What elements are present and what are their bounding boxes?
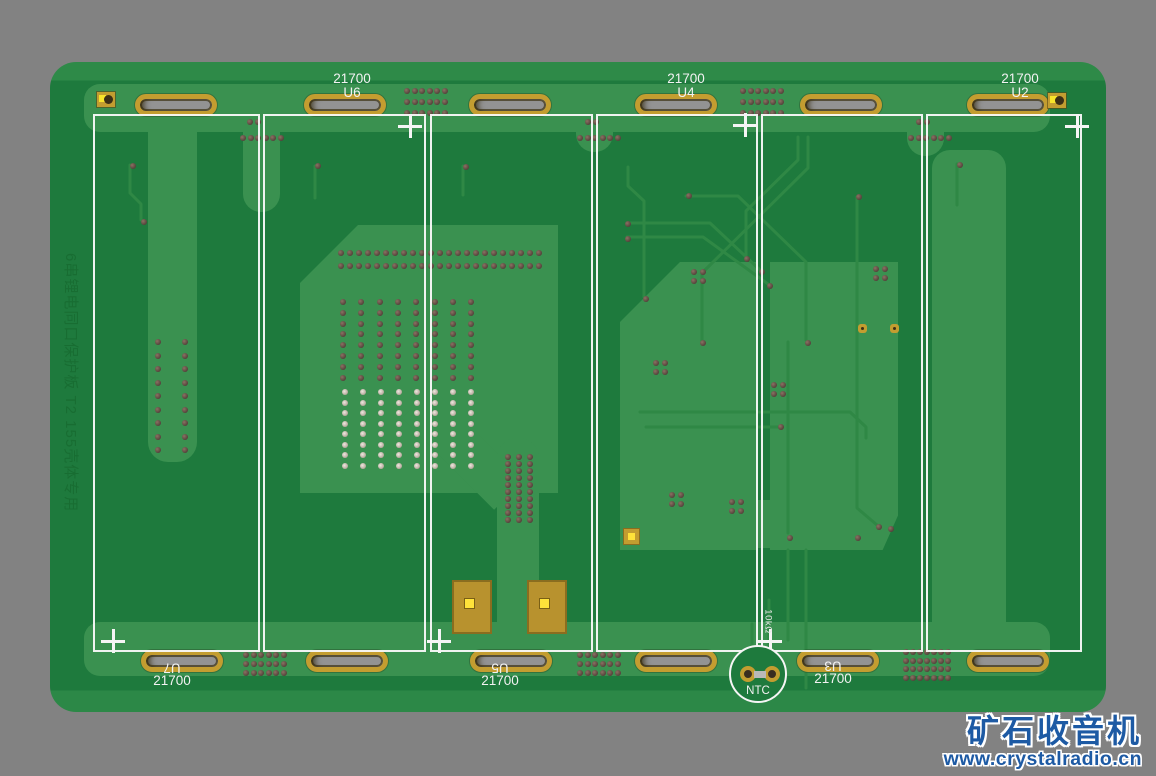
via [778, 88, 784, 94]
via [917, 666, 923, 672]
cell-label-u5: U5 21700 [458, 660, 542, 689]
cell-refdes-label: U3 [791, 658, 875, 672]
via [755, 88, 761, 94]
cell-label-u3: U3 21700 [791, 658, 875, 687]
via [770, 99, 776, 105]
via [931, 658, 937, 664]
via [585, 652, 591, 658]
via [281, 652, 287, 658]
watermark: 矿石收音机 www.crystalradio.cn [944, 714, 1142, 770]
via [924, 666, 930, 672]
via [243, 661, 249, 667]
via [903, 675, 909, 681]
via [615, 670, 621, 676]
battery-pad-u5-top [469, 94, 551, 116]
cell-refdes-label: U5 [458, 660, 542, 674]
via [251, 661, 257, 667]
via [931, 675, 937, 681]
via [442, 88, 448, 94]
ntc-pad-right [764, 666, 780, 682]
via [770, 88, 776, 94]
ntc-label: NTC [731, 685, 785, 697]
via [442, 99, 448, 105]
cell-size-label: 21700 [458, 674, 542, 688]
via [607, 652, 613, 658]
via [592, 670, 598, 676]
cell-label-u4: 21700 U4 [644, 72, 728, 101]
via [243, 670, 249, 676]
via [404, 99, 410, 105]
via [258, 661, 264, 667]
battery-pad-u6-bottom [306, 650, 388, 672]
cell-size-label: 21700 [310, 72, 394, 86]
via [427, 88, 433, 94]
via [281, 661, 287, 667]
via [903, 658, 909, 664]
via [910, 658, 916, 664]
via [607, 670, 613, 676]
via [763, 99, 769, 105]
via [266, 652, 272, 658]
via [266, 661, 272, 667]
cell-refdes-label: U7 [130, 660, 214, 674]
cell-outline-u4 [596, 114, 758, 652]
via [910, 666, 916, 672]
via [600, 652, 606, 658]
via [740, 88, 746, 94]
via [412, 88, 418, 94]
via [917, 675, 923, 681]
via [585, 661, 591, 667]
cell-refdes-label: U4 [644, 86, 728, 100]
via [600, 661, 606, 667]
cell-size-label: 21700 [978, 72, 1062, 86]
via [258, 652, 264, 658]
via [615, 661, 621, 667]
ntc-thermistor-body [754, 671, 766, 678]
alignment-cross [101, 629, 125, 653]
via [427, 99, 433, 105]
via [938, 675, 944, 681]
cell-size-label: 21700 [644, 72, 728, 86]
via [931, 666, 937, 672]
pcb-viewport: 21700 U6 21700 U4 21700 U2 U7 21700 U5 2… [0, 0, 1156, 776]
cell-outline-u7 [93, 114, 260, 652]
cell-label-u6: 21700 U6 [310, 72, 394, 101]
via [585, 670, 591, 676]
battery-pad-u3-top [800, 94, 882, 116]
via [266, 670, 272, 676]
via [600, 670, 606, 676]
ntc-value-label: 10kΩ [763, 606, 774, 638]
via [577, 661, 583, 667]
alignment-cross [427, 629, 451, 653]
via [251, 652, 257, 658]
via [404, 88, 410, 94]
cell-outline-u2 [926, 114, 1082, 652]
via [273, 670, 279, 676]
via [592, 661, 598, 667]
via [917, 658, 923, 664]
via [748, 99, 754, 105]
silkscreen-note: 6串锂电同口保护板 T2 155壳体专用 [64, 253, 82, 525]
via [273, 652, 279, 658]
via [281, 670, 287, 676]
via [938, 658, 944, 664]
battery-pad-u4-bottom [635, 650, 717, 672]
via [592, 652, 598, 658]
via [434, 88, 440, 94]
battery-pad-u2-bottom [967, 650, 1049, 672]
alignment-cross [1065, 114, 1089, 138]
corner-pad-top-left [97, 92, 115, 107]
via [755, 99, 761, 105]
via [924, 658, 930, 664]
via [607, 661, 613, 667]
via [577, 670, 583, 676]
cell-label-u7: U7 21700 [130, 660, 214, 689]
cell-outline-u3 [761, 114, 923, 652]
via [412, 99, 418, 105]
via [903, 666, 909, 672]
via [243, 652, 249, 658]
cell-label-u2: 21700 U2 [978, 72, 1062, 101]
via [258, 670, 264, 676]
via [419, 99, 425, 105]
cell-refdes-label: U6 [310, 86, 394, 100]
via [763, 88, 769, 94]
via [924, 675, 930, 681]
via [778, 99, 784, 105]
via [577, 652, 583, 658]
alignment-cross [398, 114, 422, 138]
watermark-site-url: www.crystalradio.cn [944, 749, 1142, 770]
via [945, 675, 951, 681]
via [910, 675, 916, 681]
cell-size-label: 21700 [130, 674, 214, 688]
via [434, 99, 440, 105]
via [740, 99, 746, 105]
cell-refdes-label: U2 [978, 86, 1062, 100]
via [419, 88, 425, 94]
via [251, 670, 257, 676]
cell-outline-u5 [430, 114, 593, 652]
ntc-sensor: NTC [729, 645, 787, 703]
cell-size-label: 21700 [791, 672, 875, 686]
battery-pad-u7-top [135, 94, 217, 116]
cell-outline-u6 [263, 114, 426, 652]
via [748, 88, 754, 94]
via [945, 658, 951, 664]
via [273, 661, 279, 667]
watermark-site-name: 矿石收音机 [944, 714, 1142, 749]
via [938, 666, 944, 672]
via [615, 652, 621, 658]
via [945, 666, 951, 672]
alignment-cross [733, 113, 757, 137]
